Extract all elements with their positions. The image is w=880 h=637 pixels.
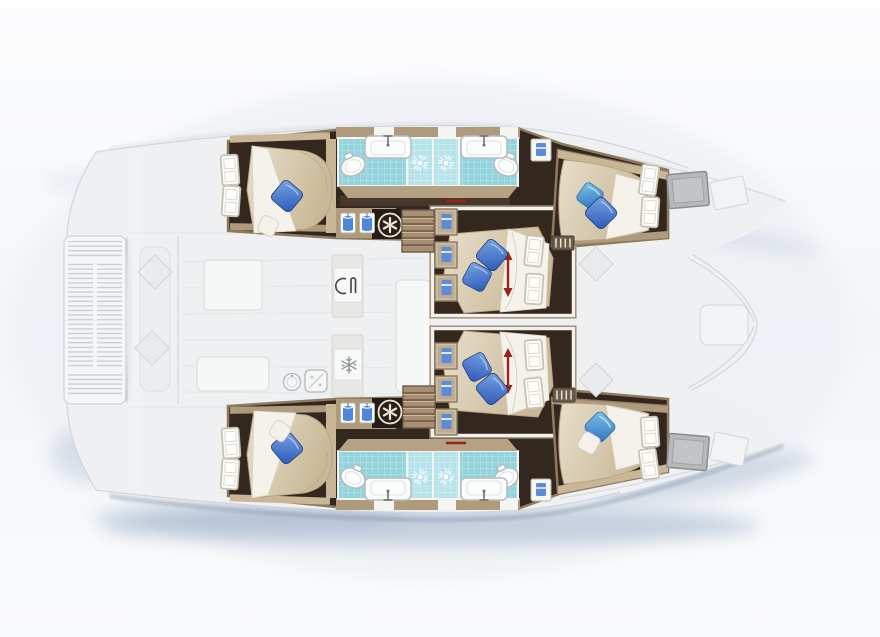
window-icon [220, 154, 239, 185]
window-icon [638, 164, 659, 196]
window-icon [640, 416, 659, 447]
sun-icon [438, 155, 454, 171]
saloon-seat [396, 280, 430, 392]
cubby-icon [435, 409, 457, 435]
platform-slats-right [97, 263, 122, 369]
window-icon [221, 427, 240, 458]
head-step-edge [338, 439, 518, 451]
catamaran-floorplan-page [0, 0, 880, 637]
towel-locker-icon [531, 479, 551, 501]
forward-cockpit-seat [700, 305, 748, 345]
cubby-icon [435, 376, 457, 402]
window-icon [524, 377, 544, 409]
sun-icon [438, 469, 454, 485]
sink-icon [365, 478, 411, 500]
hatch-icon [667, 171, 710, 208]
cubby-icon [435, 343, 457, 369]
towel-locker-icon [531, 139, 551, 161]
sinkround-icon [284, 374, 301, 391]
platform-slats-bottom [68, 373, 122, 397]
window-icon [638, 448, 659, 480]
washer-icon [379, 214, 402, 237]
window-icon [220, 458, 239, 489]
cubby-icon [435, 242, 457, 268]
hatch-icon [667, 433, 710, 470]
window-icon [524, 273, 543, 304]
catamaran-floorplan [0, 0, 880, 637]
vent-icon [552, 236, 574, 250]
window-icon [524, 235, 544, 267]
platform-slats-top [68, 241, 122, 259]
sink-icon [461, 136, 507, 158]
sun-icon [412, 155, 428, 171]
cubby-icon [435, 209, 457, 235]
sink-icon [365, 136, 411, 158]
washer-icon [379, 401, 402, 424]
window-icon [221, 185, 240, 216]
stairs-icon [402, 210, 434, 252]
sun-icon [412, 469, 428, 485]
vent-icon [553, 388, 575, 402]
cockpit-table-lower [197, 357, 269, 391]
shirt-icon [360, 403, 375, 423]
head-step-edge [338, 186, 518, 198]
platform-slats-left [68, 263, 93, 369]
window-icon [524, 339, 543, 370]
cockpit-table-upper [204, 260, 262, 310]
stove-icon [305, 370, 327, 392]
stairs-icon [403, 386, 435, 428]
window-icon [640, 196, 659, 227]
shirt-icon [360, 213, 375, 233]
stern-platform [64, 236, 130, 404]
shirt-icon [341, 213, 356, 233]
shirt-icon [341, 403, 356, 423]
sink-icon [461, 478, 507, 500]
cubby-icon [435, 275, 457, 301]
cooktop-box [334, 268, 362, 302]
